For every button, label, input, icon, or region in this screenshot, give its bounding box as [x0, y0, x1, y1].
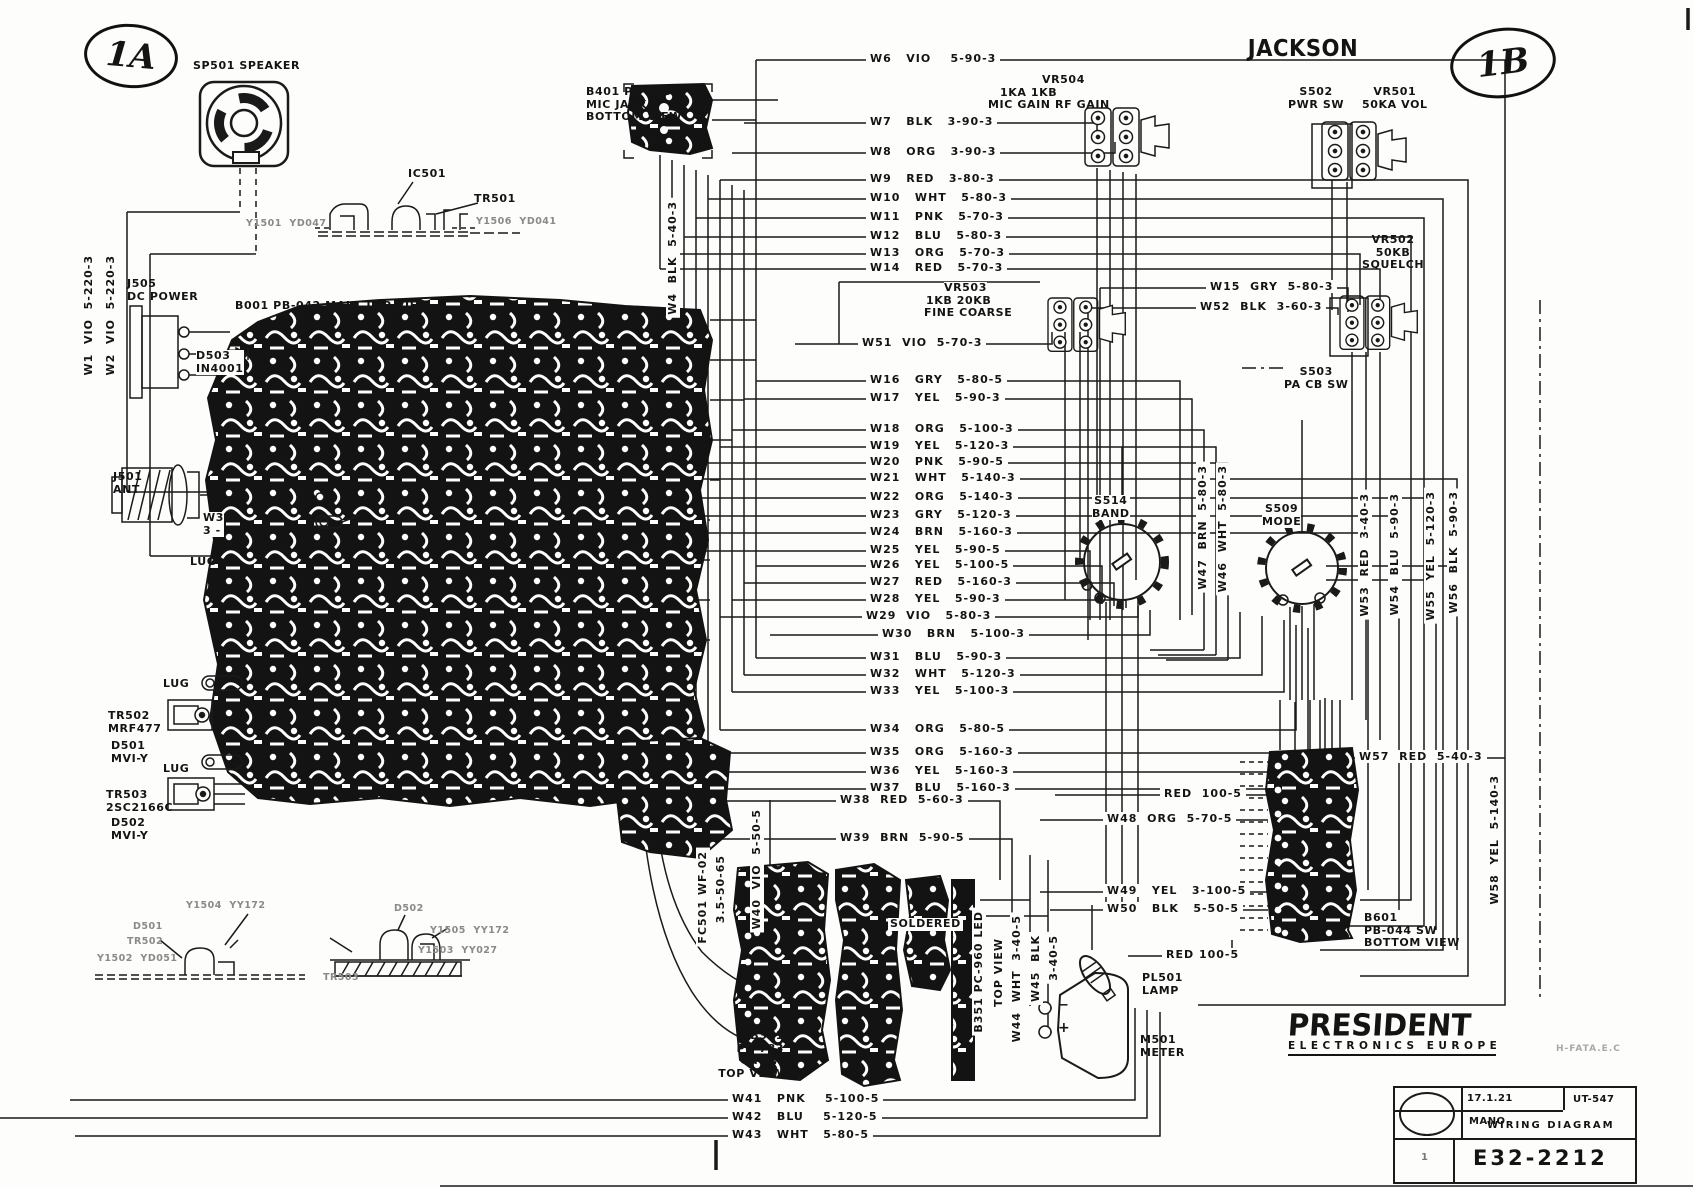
wire-label-w22: W22 ORG 5-140-3	[866, 490, 1018, 503]
label-vr504: VR504	[1042, 74, 1085, 87]
label-w3: W3 3 -	[203, 512, 224, 537]
sheet-ref-1b-label: 1B	[1475, 40, 1532, 86]
wire-label-w58: W58 YEL 5-140-3	[1488, 772, 1502, 908]
wire-label-w54: W54 BLU 5-90-3	[1388, 490, 1402, 618]
brand-name: PRESIDENT	[1287, 1007, 1497, 1043]
label-y1506: Y1506 YD041	[476, 216, 557, 227]
label-s509: S509 MODE	[1262, 503, 1301, 528]
wire-label-w15: W15 GRY 5-80-3	[1206, 280, 1337, 293]
wire-label-w6: W6 VIO 5-90-3	[866, 52, 1000, 65]
wire-label-w18: W18 ORG 5-100-3	[866, 422, 1018, 435]
wire-label-w48: W48 ORG 5-70-5	[1103, 812, 1236, 825]
wire-label-w14: W14 RED 5-70-3	[866, 261, 1007, 274]
pcb-areas	[204, 84, 1358, 1086]
fc-pcb	[616, 738, 732, 858]
wire-label-w50: W50 BLK 5-50-5	[1103, 902, 1243, 915]
wire-label-red2: RED 100-5	[1162, 948, 1243, 961]
label-vr504-funcs: MIC GAIN RF GAIN	[988, 99, 1110, 112]
title-block-divider	[1395, 1138, 1635, 1140]
b351-pcb-b	[904, 876, 950, 990]
label-j501: J501 ANT	[113, 471, 142, 496]
wire-label-w9: W9 RED 3-80-3	[866, 172, 999, 185]
wire-label-w2: W2 VIO 5-220-3	[104, 252, 118, 378]
wire-label-w45a: W45 BLK	[1029, 932, 1043, 1005]
label-tr503: TR503 2SC2166C	[106, 789, 173, 814]
label-pl501: PL501 LAMP	[1142, 972, 1183, 997]
label-b351-view: TOP VIEW	[992, 935, 1006, 1010]
label-s514: S514 BAND	[1092, 495, 1130, 520]
title-block-divider	[1453, 1138, 1455, 1182]
label-s502: S502 PWR SW	[1288, 86, 1344, 111]
label-lug-b: LUG	[163, 763, 189, 776]
wire-label-w1: W1 VIO 5-220-3	[82, 252, 96, 378]
component-side-sketch-top	[318, 182, 520, 236]
wire-label-w51: W51 VIO 5-70-3	[858, 336, 986, 349]
label-y1503: Y1503 YY027	[418, 945, 498, 956]
title-block-divider	[1461, 1088, 1463, 1138]
wire-label-w7: W7 BLK 3-90-3	[866, 115, 997, 128]
wire-label-w17: W17 YEL 5-90-3	[866, 391, 1005, 404]
mode-switch-icon	[1261, 527, 1343, 609]
wire-label-w57: W57 RED 5-40-3	[1355, 750, 1487, 763]
wire-label-w53: W53 RED 3-40-3	[1358, 490, 1372, 620]
label-d503: D503 IN4001	[196, 350, 244, 375]
label-lug-ant: LUG	[190, 556, 216, 569]
b351-led-strip	[952, 880, 974, 1080]
wire-label-w13: W13 ORG 5-70-3	[866, 246, 1009, 259]
label-y1504: Y1504 YY172	[186, 900, 266, 911]
wire-label-fc501-spec: 3.5-50-65	[714, 852, 728, 926]
wire-label-w55: W55 YEL 5-120-3	[1424, 488, 1438, 624]
brand-logo: PRESIDENT ELECTRONICS EUROPE	[1288, 1008, 1496, 1056]
vr502-s503-pot-icon	[1330, 296, 1417, 356]
transistor-tr503-icon	[168, 778, 214, 810]
wire-label-w38: W38 RED 5-60-3	[836, 793, 968, 806]
label-y1505: Y1505 YY172	[430, 925, 510, 936]
wire-label-w36: W36 YEL 5-160-3	[866, 764, 1013, 777]
wire-label-w43: W43 WHT 5-80-5	[728, 1128, 873, 1141]
wire-label-w32: W32 WHT 5-120-3	[866, 667, 1020, 680]
wire-label-w8: W8 ORG 3-90-3	[866, 145, 1000, 158]
label-y1501: Y1501 YD047	[246, 218, 327, 229]
label-soldered: SOLDERED	[888, 918, 963, 931]
b601-pcb	[1266, 748, 1358, 942]
label-d502: D502 MVI-Y	[111, 817, 148, 842]
title-block-doc-no: UT-547	[1573, 1094, 1615, 1105]
wire-label-w10: W10 WHT 5-80-3	[866, 191, 1011, 204]
approval-stamp	[1399, 1092, 1455, 1136]
label-meter-minus: −	[1058, 1000, 1070, 1013]
transistor-tr502-icon	[168, 700, 212, 730]
label-y1502: Y1502 YD051	[97, 953, 178, 964]
wire-label-w23: W23 GRY 5-120-3	[866, 508, 1016, 521]
label-vr503-funcs: FINE COARSE	[924, 307, 1012, 320]
title-block-doc-title: WIRING DIAGRAM	[1487, 1120, 1615, 1131]
vr504-pot-icon	[1085, 108, 1169, 166]
wire-label-w30: W30 BRN 5-100-3	[878, 627, 1029, 640]
label-sp501: SP501 SPEAKER	[193, 60, 300, 73]
wire-label-w31: W31 BLU 5-90-3	[866, 650, 1006, 663]
wire-label-w20: W20 PNK 5-90-5	[866, 455, 1008, 468]
vr503-pot-icon	[1048, 298, 1125, 351]
label-b401: B401 PC-266 MIC JACK BOTTOM VIEW	[586, 86, 682, 124]
label-b001: B001 PB-042 MAIN TOP VIEW	[235, 300, 431, 313]
wire-label-w28: W28 YEL 5-90-3	[866, 592, 1005, 605]
wire-label-w49: W49 YEL 3-100-5	[1103, 884, 1250, 897]
wire-label-w26: W26 YEL 5-100-5	[866, 558, 1013, 571]
wire-label-w16: W16 GRY 5-80-5	[866, 373, 1007, 386]
wire-label-w47: W47 BRN 5-80-3	[1196, 462, 1210, 593]
sheet-ref-1a-label: 1A	[104, 34, 157, 78]
label-s503: S503 PA CB SW	[1284, 366, 1349, 391]
label-tr503-side: TR503	[323, 972, 359, 983]
label-vr502: VR502 50KB SQUELCH	[1362, 234, 1424, 272]
wire-label-w21: W21 WHT 5-140-3	[866, 471, 1020, 484]
wire-label-w27: W27 RED 5-160-3	[866, 575, 1016, 588]
wire-label-w44: W44 WHT 3-40-5	[1010, 912, 1024, 1045]
wire-label-fc501: FC501 WF-02	[696, 848, 710, 947]
label-j505: J505 DC POWER	[127, 278, 198, 303]
label-d501-side: D501	[133, 921, 163, 932]
label-d501: D501 MVI-Y	[111, 740, 148, 765]
label-tr502: TR502 MRF477	[108, 710, 162, 735]
wire-label-w41: W41 PNK 5-100-5	[728, 1092, 883, 1105]
wire-label-w34: W34 ORG 5-80-5	[866, 722, 1009, 735]
label-d502-side: D502	[394, 903, 424, 914]
title-block-date: 17.1.21	[1467, 1093, 1513, 1104]
wire-mesh-bottom	[0, 1008, 1160, 1136]
label-tr502-side: TR502	[127, 936, 163, 947]
wire-label-w29: W29 VIO 5-80-3	[862, 609, 995, 622]
band-switch-icon	[1079, 519, 1165, 605]
wire-label-w11: W11 PNK 5-70-3	[866, 210, 1008, 223]
title-block-divider	[1563, 1088, 1565, 1110]
title-block-sheet-no: 1	[1421, 1152, 1428, 1163]
speaker-icon	[200, 82, 288, 166]
wire-label-w45b: 3-40-5	[1047, 932, 1061, 984]
b351-pcb-a	[836, 864, 902, 1086]
label-b601: B601 PB-044 SW BOTTOM VIEW	[1364, 912, 1460, 950]
label-b301: B301 PC-783 CH SW TOP VIEW	[718, 1030, 784, 1080]
s502-vr501-pot-icon	[1312, 122, 1406, 188]
wire-label-w42: W42 BLU 5-120-5	[728, 1110, 882, 1123]
title-block: 17.1.21 MANO UT-547 WIRING DIAGRAM E32-2…	[1393, 1086, 1637, 1184]
label-vr503: VR503	[944, 282, 987, 295]
label-lug-a: LUG	[163, 678, 189, 691]
label-b351: B351 PC-960 LED	[972, 908, 986, 1036]
wiring-diagram-sheet: 1A 1B JACKSON SP501 SPEAKER IC501 TR501 …	[0, 0, 1693, 1189]
sheet-title: JACKSON	[1248, 36, 1358, 62]
wire-label-w56: W56 BLK 5-90-3	[1447, 488, 1461, 616]
wire-label-red1: RED 100-5	[1160, 787, 1246, 800]
wire-label-w35: W35 ORG 5-160-3	[866, 745, 1018, 758]
main-pcb	[204, 296, 712, 806]
wire-label-w40: W40 VIO 5-50-5	[750, 806, 764, 932]
label-ic501: IC501	[408, 168, 446, 181]
title-block-drawing-no: E32-2212	[1473, 1146, 1608, 1170]
wire-label-w33: W33 YEL 5-100-3	[866, 684, 1013, 697]
wire-label-w12: W12 BLU 5-80-3	[866, 229, 1006, 242]
label-tr501: TR501	[474, 193, 516, 206]
wire-label-w4: W4 BLK 5-40-3	[666, 198, 680, 318]
wire-label-w39: W39 BRN 5-90-5	[836, 831, 969, 844]
dc-power-jack-icon	[130, 306, 189, 398]
wire-label-w24: W24 BRN 5-160-3	[866, 525, 1017, 538]
wire-label-w25: W25 YEL 5-90-5	[866, 543, 1005, 556]
label-meter-plus: +	[1058, 1022, 1070, 1035]
wire-label-w46: W46 WHT 5-80-3	[1216, 462, 1230, 595]
wire-label-w52: W52 BLK 3-60-3	[1196, 300, 1326, 313]
lamp-icon	[1074, 951, 1119, 1003]
meter-icon	[1039, 973, 1128, 1078]
label-vr501: VR501 50KA VOL	[1362, 86, 1428, 111]
label-m501: M501 METER	[1140, 1034, 1185, 1059]
wire-label-w19: W19 YEL 5-120-3	[866, 439, 1013, 452]
sheet-side-code: H-FATA.E.C	[1556, 1044, 1621, 1054]
